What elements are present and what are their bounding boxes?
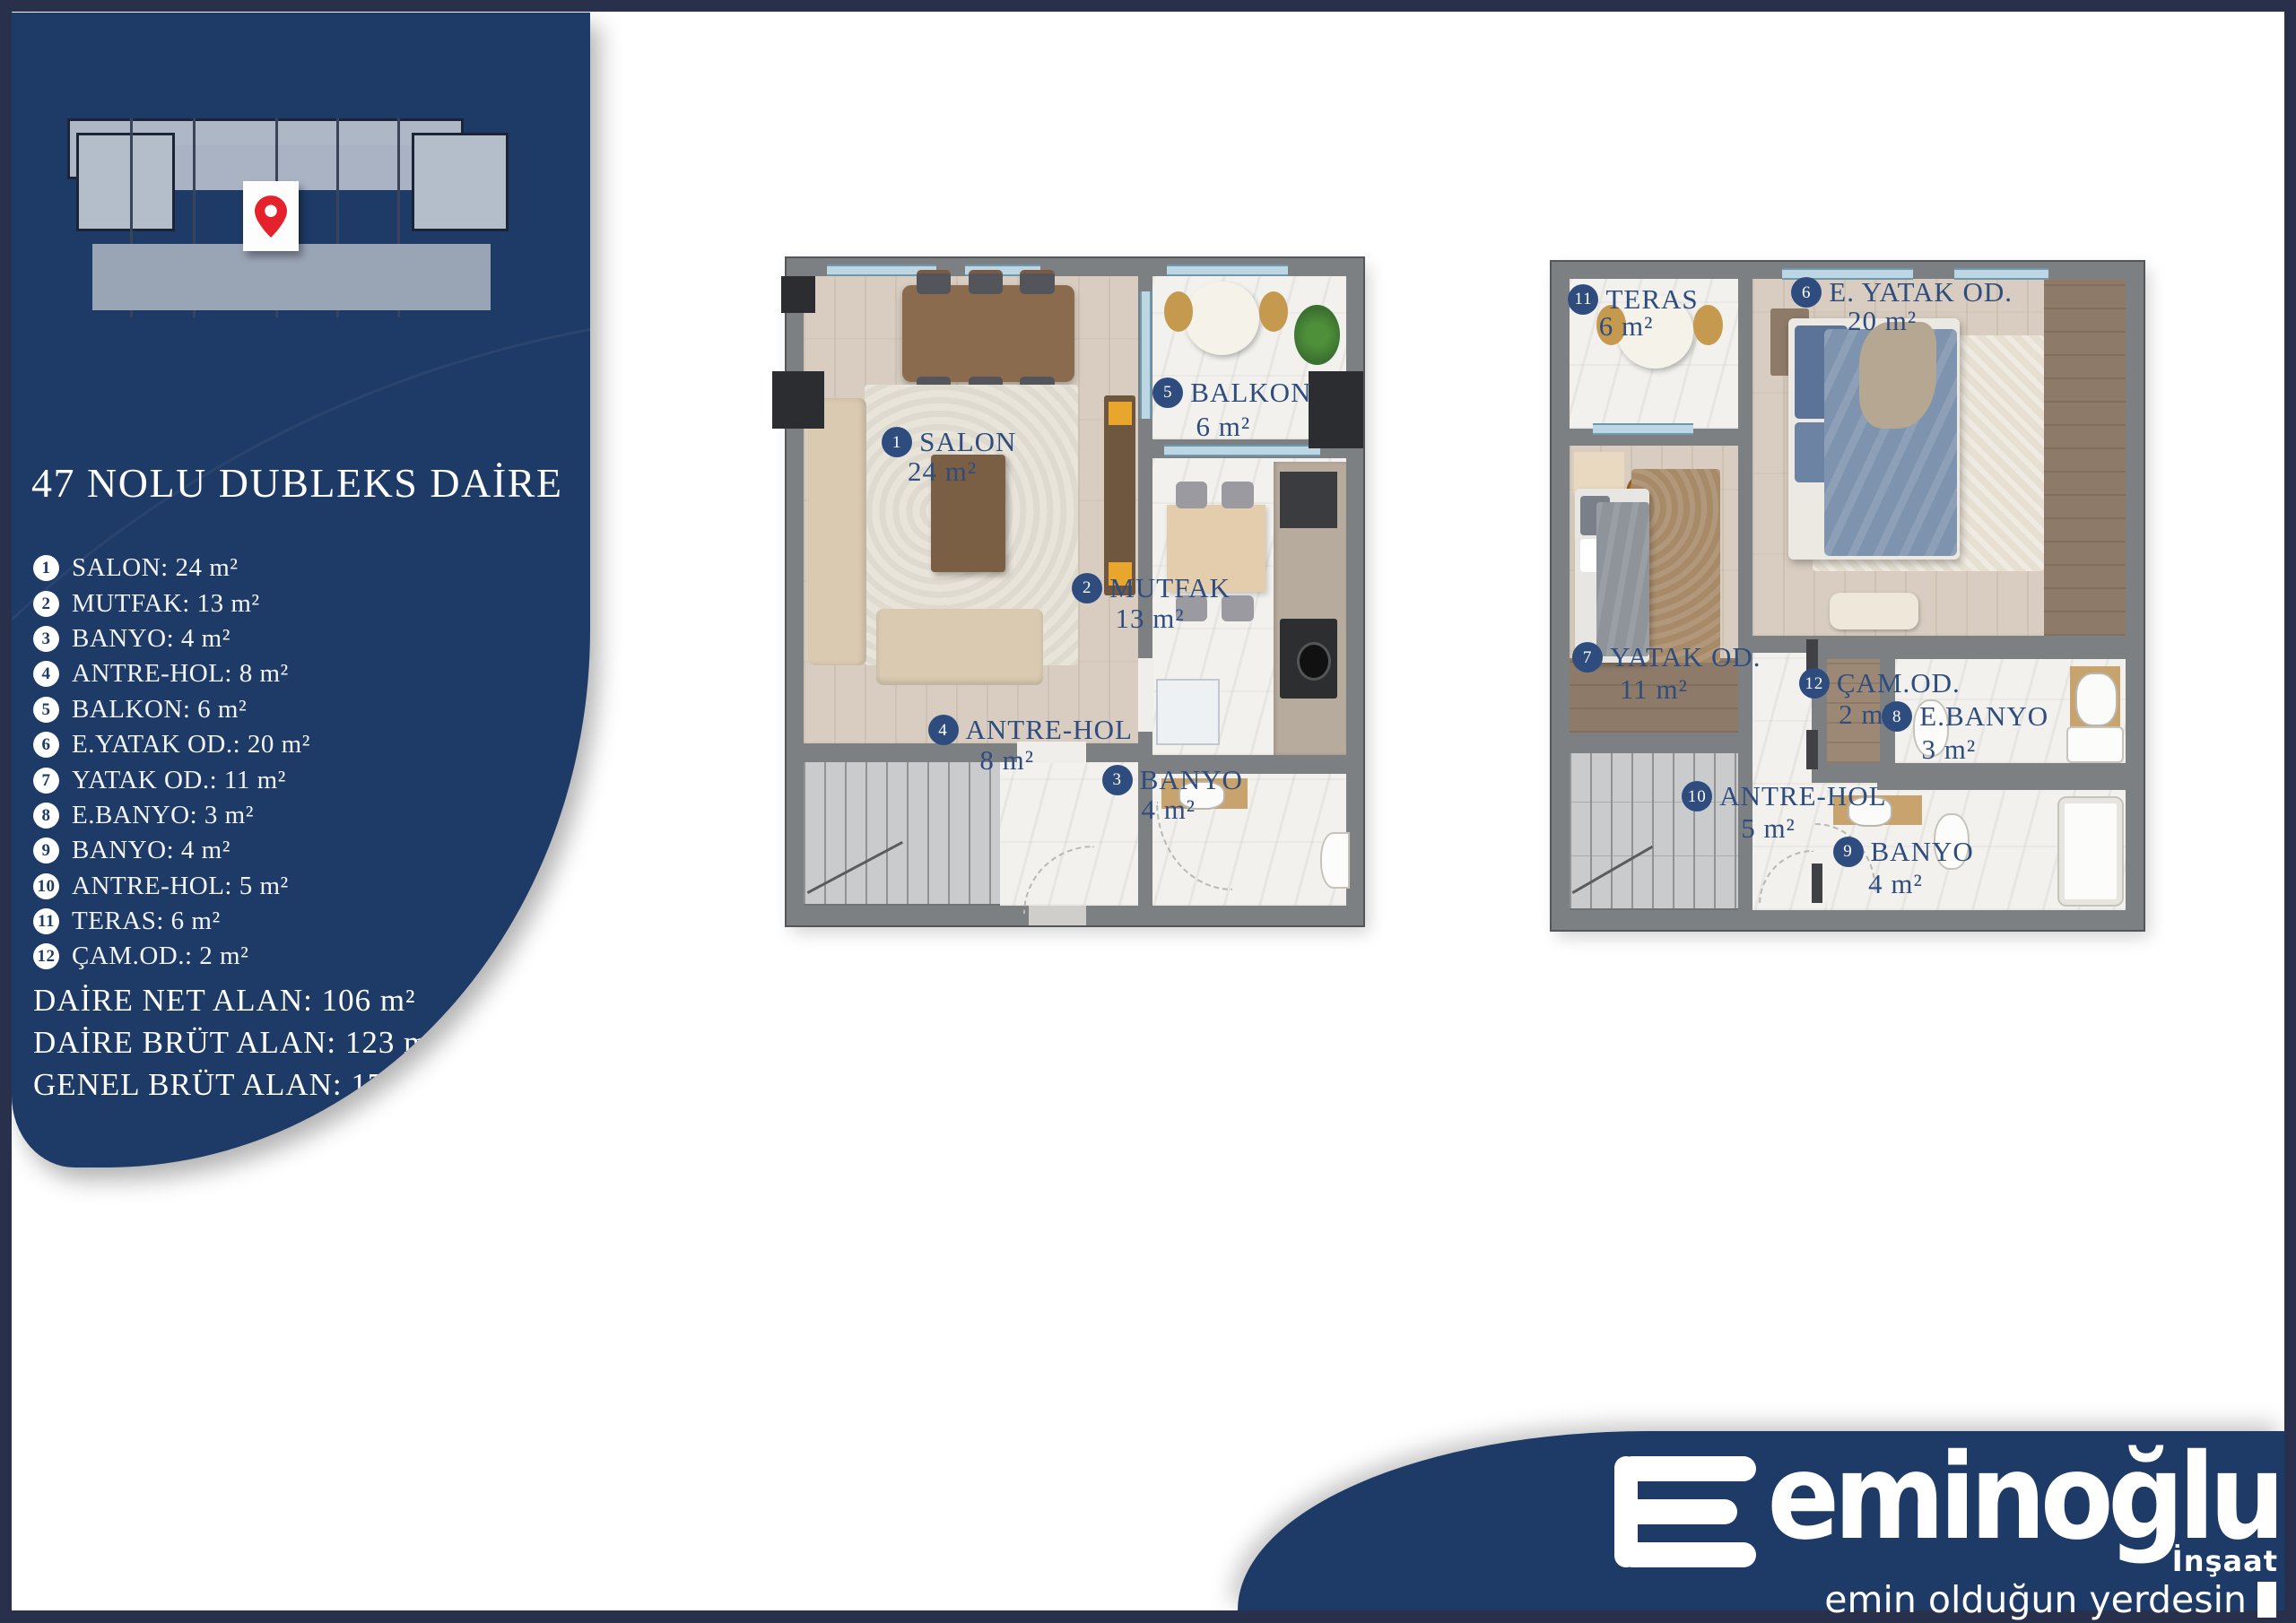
list-item-label: ANTRE-HOL: 8 m² [72, 659, 289, 689]
plant [1294, 305, 1340, 365]
building-site-plan [67, 118, 514, 317]
item-number-badge: 8 [33, 803, 59, 829]
list-item-label: BANYO: 4 m² [72, 624, 230, 654]
list-item: 9BANYO: 4 m² [33, 833, 310, 868]
page-title: 47 NOLU DUBLEKS DAİRE [31, 459, 578, 507]
list-item: 7YATAK OD.: 11 m² [33, 762, 310, 797]
tagline-text: emin olduğun yerdesin [1824, 1578, 2247, 1621]
brand-tagline: emin olduğun yerdesin [1824, 1578, 2276, 1621]
brand-division: İnşaat [2172, 1544, 2278, 1578]
staircase [804, 762, 1000, 905]
balcony-chair [1259, 291, 1288, 332]
list-item-label: YATAK OD.: 11 m² [72, 766, 286, 795]
list-item: 3BANYO: 4 m² [33, 621, 310, 656]
list-item-label: TERAS: 6 m² [72, 907, 221, 936]
room-area: 13 m² [1116, 603, 1185, 635]
list-item: 2MUTFAK: 13 m² [33, 586, 310, 621]
item-number-badge: 9 [33, 838, 59, 864]
window [1140, 291, 1152, 418]
item-number-badge: 4 [33, 661, 59, 687]
tagline-cursor-block [2257, 1582, 2276, 1618]
room-name: YATAK OD. [1610, 641, 1761, 673]
site-plan-base [92, 244, 491, 310]
gray-duvet [1596, 502, 1649, 655]
room-name: BANYO [1140, 764, 1243, 796]
list-item: 10ANTRE-HOL: 5 m² [33, 869, 310, 904]
room-name: ANTRE-HOL [1719, 780, 1886, 812]
room-number-badge: 11 [1568, 284, 1598, 315]
kitchen-chair [1176, 482, 1207, 508]
item-number-badge: 5 [33, 697, 59, 723]
dining-table [902, 285, 1075, 382]
room-name: SALON [919, 426, 1016, 458]
dining-chair [969, 270, 1004, 293]
total-net-area: DAİRE NET ALAN: 106 m² [33, 979, 445, 1021]
room-number-badge: 8 [1882, 701, 1912, 732]
room-name: E.BANYO [1919, 700, 2048, 733]
sidebar: 47 NOLU DUBLEKS DAİRE 1SALON: 24 m² 2MUT… [12, 13, 590, 1167]
list-item: 1SALON: 24 m² [33, 551, 310, 586]
room-number-badge: 7 [1572, 642, 1603, 673]
dining-chair [1020, 270, 1055, 293]
balcony-chair [1164, 291, 1193, 332]
list-item: 6E.YATAK OD.: 20 m² [33, 727, 310, 762]
room-area: 6 m² [1599, 310, 1654, 343]
room-number-badge: 2 [1072, 573, 1102, 603]
list-item-label: BALKON: 6 m² [72, 695, 247, 725]
dining-chair [917, 270, 952, 293]
kitchen-sink-unit [1280, 472, 1337, 528]
room-area: 4 m² [1868, 868, 1923, 900]
e-yatak-dark-floor [2044, 279, 2126, 637]
area-totals: DAİRE NET ALAN: 106 m² DAİRE BRÜT ALAN: … [33, 979, 445, 1106]
shower-tray [2066, 726, 2123, 763]
kitchen-chair [1222, 482, 1253, 508]
shaft-block [1309, 371, 1363, 448]
list-item-label: MUTFAK: 13 m² [72, 589, 260, 619]
shaft-block [772, 371, 824, 428]
room-name: ANTRE-HOL [966, 714, 1133, 746]
room-number-badge: 12 [1799, 668, 1830, 699]
room-number-badge: 6 [1791, 277, 1822, 308]
brand-logo-text: eminoğlu [1768, 1438, 2280, 1557]
list-item-label: E.YATAK OD.: 20 m² [72, 730, 310, 759]
room-area: 11 m² [1620, 673, 1688, 706]
room-number-badge: 10 [1682, 781, 1712, 811]
toilet [1320, 832, 1350, 890]
stove-burner [1297, 642, 1331, 681]
item-number-badge: 6 [33, 732, 59, 758]
wall-block [781, 276, 816, 313]
room-area: 4 m² [1141, 794, 1196, 826]
wall-segment [1806, 730, 1818, 770]
sink [2075, 673, 2118, 726]
room-name: BANYO [1871, 836, 1974, 868]
sofa-left [808, 398, 865, 665]
room-number-badge: 5 [1152, 378, 1183, 408]
terrace-door-window [1593, 423, 1693, 435]
sofa-bottom [876, 609, 1043, 686]
room-list: 1SALON: 24 m² 2MUTFAK: 13 m² 3BANYO: 4 m… [33, 551, 310, 975]
item-number-badge: 2 [33, 591, 59, 617]
stair-diagonal [1571, 846, 1653, 894]
room-number-badge: 4 [928, 715, 959, 745]
room-name: ÇAM.OD. [1837, 667, 1961, 699]
bathtub [2057, 796, 2123, 907]
site-plan-right-block [412, 133, 509, 231]
balcony-door-window [1164, 445, 1320, 456]
room-area: 3 m² [1922, 733, 1977, 766]
item-number-badge: 10 [33, 873, 59, 899]
stair-diagonal [806, 841, 903, 894]
balcony-railing [1167, 265, 1288, 276]
wall-segment [1812, 864, 1822, 904]
door-opening [1138, 658, 1153, 732]
room-number-badge: 9 [1833, 837, 1864, 867]
list-item-label: E.BANYO: 3 m² [72, 801, 254, 830]
location-pin-icon [255, 195, 287, 238]
room-name: MUTFAK [1109, 572, 1231, 604]
room-number-badge: 1 [882, 427, 912, 457]
item-number-badge: 12 [33, 943, 59, 969]
floor-plan-2: 11TERAS 6 m² 6E. YATAK OD. 20 m² 7YATAK … [1552, 262, 2144, 930]
total-general-gross-area: GENEL BRÜT ALAN: 174 m² [33, 1063, 445, 1106]
room-area: 20 m² [1848, 305, 1917, 337]
staircase [1570, 753, 1738, 910]
site-plan-left-block [76, 133, 175, 231]
brochure-page: 47 NOLU DUBLEKS DAİRE 1SALON: 24 m² 2MUT… [0, 0, 2296, 1623]
item-number-badge: 1 [33, 555, 59, 581]
room-area: 6 m² [1196, 411, 1251, 443]
list-item-label: SALON: 24 m² [72, 553, 238, 583]
item-number-badge: 3 [33, 626, 59, 652]
list-item-label: ÇAM.OD.: 2 m² [72, 942, 248, 971]
room-area: 8 m² [979, 744, 1034, 777]
list-item: 12ÇAM.OD.: 2 m² [33, 939, 310, 974]
balcony-table [1185, 282, 1260, 355]
list-item: 5BALKON: 6 m² [33, 692, 310, 727]
room-name: BALKON [1190, 377, 1311, 409]
list-item: 4ANTRE-HOL: 8 m² [33, 656, 310, 691]
list-item-label: ANTRE-HOL: 5 m² [72, 872, 289, 901]
tv-unit-accent [1109, 402, 1132, 425]
list-item-label: BANYO: 4 m² [72, 836, 230, 865]
list-item: 8E.BANYO: 3 m² [33, 798, 310, 833]
item-number-badge: 11 [33, 908, 59, 934]
room-area: 5 m² [1741, 812, 1796, 845]
room-area: 24 m² [908, 456, 977, 488]
dresser [1830, 593, 1918, 629]
total-gross-area: DAİRE BRÜT ALAN: 123 m² [33, 1021, 445, 1063]
eminoglu-logo-icon [1620, 1456, 1756, 1567]
fridge [1156, 679, 1221, 746]
item-number-badge: 7 [33, 768, 59, 794]
list-item: 11TERAS: 6 m² [33, 904, 310, 939]
floor-plan-1: 1SALON 24 m² 5BALKON 6 m² 2MUTFAK 13 m² … [787, 258, 1363, 925]
room-number-badge: 3 [1102, 765, 1133, 795]
blanket-throw [1859, 322, 1936, 429]
